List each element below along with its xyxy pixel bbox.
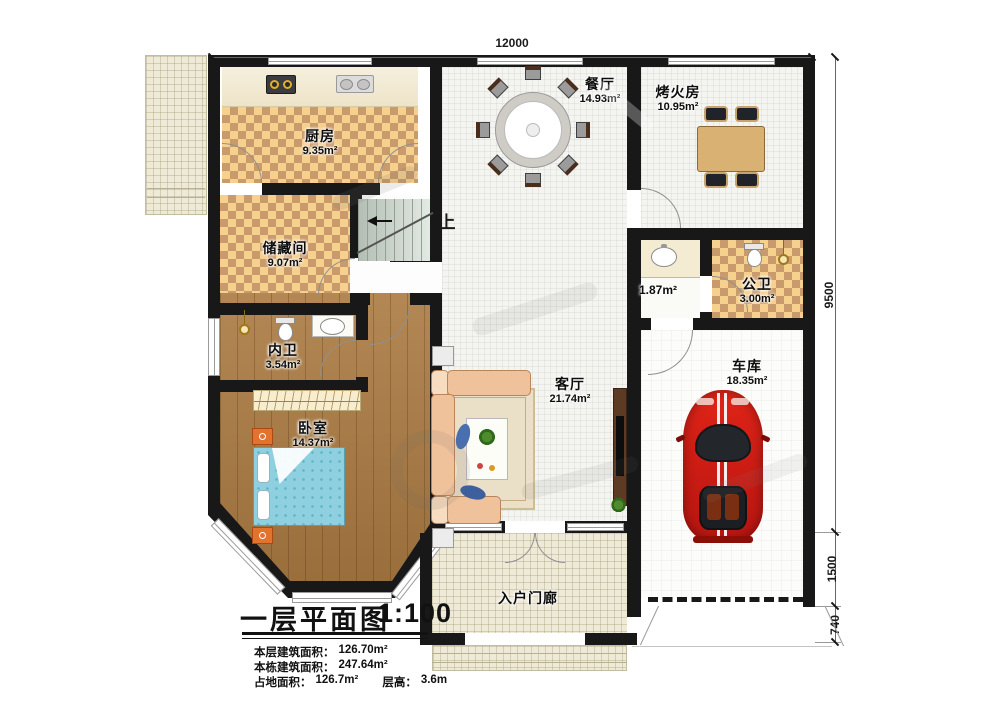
- porch-step-line: [432, 662, 627, 663]
- title-rule-thin: [242, 638, 428, 639]
- garage-door-dashed: [648, 597, 803, 602]
- sofa-two-seat: [447, 370, 531, 396]
- pillow: [257, 490, 270, 520]
- dimension-line-top: [212, 57, 812, 58]
- dimension-right-step: 740: [828, 599, 842, 651]
- kitchen-sink-icon: [336, 75, 374, 93]
- porch-steps: [432, 645, 627, 671]
- room-label-kitchen: 厨房9.35m²: [270, 128, 370, 157]
- public-shower-cord: [783, 240, 784, 255]
- patio-step-line: [147, 188, 205, 189]
- bed: [253, 447, 345, 526]
- car: [683, 390, 763, 542]
- stairs-arrow-shaft: [376, 220, 392, 222]
- room-label-storage: 储藏间9.07m²: [235, 240, 335, 269]
- dimension-right-main: 9500: [822, 269, 836, 321]
- car-vent: [696, 398, 714, 405]
- wall-bath-divider-a: [700, 240, 712, 276]
- wall-right: [803, 55, 815, 607]
- room-label-bedroom: 卧室14.37m²: [263, 420, 363, 449]
- private-sink-icon: [320, 318, 345, 335]
- room-label-private-bath: 内卫3.54m²: [238, 342, 328, 371]
- dining-chair: [576, 122, 590, 138]
- wall-vanity-north: [641, 228, 803, 240]
- end-table: [432, 346, 454, 366]
- dining-window: [477, 57, 583, 65]
- room-label-public-bath: 公卫3.00m²: [712, 276, 802, 305]
- room-label-fire-room: 烤火房10.95m²: [628, 84, 728, 113]
- info-building-area: 本栋建筑面积：247.64m²: [254, 659, 388, 675]
- coffee-table: [466, 418, 508, 480]
- vanity-faucet: [661, 244, 667, 248]
- wall-porch-south-b: [585, 633, 637, 645]
- plant-icon: [611, 498, 626, 512]
- pillow: [257, 453, 270, 483]
- kitchen-counter: [222, 67, 418, 107]
- patio-top-left: [145, 55, 207, 215]
- driveway-edge: [632, 646, 832, 647]
- public-toilet-icon: [744, 243, 764, 267]
- private-shower-icon: [239, 324, 250, 335]
- wall-left: [208, 55, 220, 303]
- wall-private-bath-east-a: [356, 315, 368, 340]
- wall-private-bath-north: [208, 303, 368, 315]
- dining-chair: [476, 122, 490, 138]
- car-windshield: [695, 424, 751, 462]
- car-vent: [731, 398, 749, 405]
- dimension-right-front: 1500: [825, 543, 839, 595]
- wall-garage-north-a: [641, 318, 651, 330]
- patio-step-line: [147, 197, 205, 198]
- dining-chair: [525, 173, 541, 187]
- sheet-fold: [272, 448, 314, 484]
- wardrobe: [253, 390, 361, 411]
- fire-room-table: [697, 126, 765, 172]
- private-shower-cord: [244, 310, 245, 325]
- room-label-living: 客厅21.74m²: [520, 376, 620, 405]
- info-floor-area: 本层建筑面积：126.70m²: [254, 644, 388, 660]
- fire-room-chair: [704, 172, 728, 188]
- nightstand: [252, 527, 273, 544]
- vanity-sink-icon: [651, 247, 677, 267]
- stairs: [358, 199, 430, 261]
- stove-icon: [266, 75, 296, 94]
- car-tail: [693, 536, 753, 543]
- porch-step-line: [432, 653, 627, 654]
- wall-kitchen-east: [430, 67, 442, 195]
- dining-chair: [525, 66, 541, 80]
- room-label-vanity-area: 1.87m²: [620, 283, 696, 297]
- info-footprint-height: 占地面积：126.7m² 层高：3.6m: [254, 674, 447, 690]
- driveway-edge: [640, 606, 659, 645]
- stairs-arrow-head: [367, 216, 377, 226]
- kitchen-window: [268, 57, 372, 65]
- wall-garage-north-b: [693, 318, 803, 330]
- stairs-up-label: 上: [436, 208, 458, 233]
- living-south-window-right: [567, 523, 624, 531]
- fire-room-chair: [735, 106, 759, 122]
- end-table: [432, 528, 454, 548]
- room-label-garage: 车库18.35m²: [700, 358, 794, 387]
- wall-bedroom-north-b: [410, 293, 442, 305]
- fire-room-window: [668, 57, 775, 65]
- dimension-top-width: 12000: [480, 36, 544, 50]
- public-shower-icon: [778, 254, 789, 265]
- fire-room-chair: [735, 172, 759, 188]
- room-label-porch: 入户门廊: [478, 590, 578, 607]
- title-rule-thick: [242, 632, 428, 635]
- plan-scale: 1:100: [378, 598, 452, 629]
- private-toilet-icon: [275, 317, 295, 341]
- private-bath-window: [208, 318, 220, 376]
- watermark: [390, 430, 470, 510]
- floor-plan: 上: [0, 0, 1000, 706]
- plant-icon: [479, 429, 495, 445]
